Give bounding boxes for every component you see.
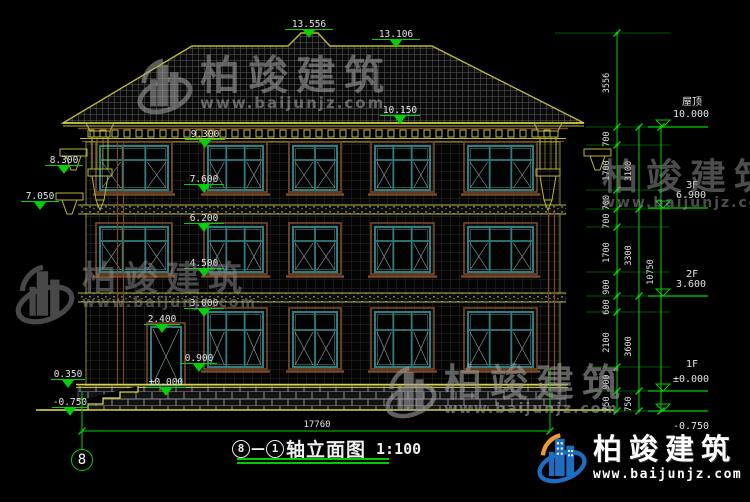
floor-level-marker: 2F3.600: [648, 269, 708, 296]
svg-text:1700: 1700: [602, 242, 612, 262]
svg-text:6.900: 6.900: [676, 190, 706, 201]
window: [461, 142, 540, 195]
floor-level-marker: 1F±0.000: [648, 359, 709, 391]
svg-text:1700: 1700: [602, 160, 612, 180]
svg-text:6.200: 6.200: [190, 213, 219, 224]
window: [93, 223, 175, 277]
svg-text:3556: 3556: [602, 73, 612, 93]
svg-text:900: 900: [602, 279, 612, 294]
svg-text:3600: 3600: [624, 336, 634, 356]
axis-dash: —: [251, 441, 265, 457]
svg-text:±0.000: ±0.000: [673, 374, 709, 385]
title-underline: [237, 458, 389, 460]
axis-start-bubble: 8: [232, 440, 250, 458]
svg-text:2100: 2100: [602, 332, 612, 352]
svg-text:0.350: 0.350: [54, 369, 83, 380]
svg-text:900: 900: [602, 374, 612, 389]
elevation-marker: 8.300: [45, 155, 83, 173]
svg-text:13.106: 13.106: [379, 29, 414, 40]
roof: [63, 33, 584, 123]
svg-text:3.600: 3.600: [676, 279, 706, 290]
dim-chain: 3556700170070070017009006002100900750: [602, 30, 621, 415]
svg-text:7.050: 7.050: [26, 191, 55, 202]
window: [368, 142, 437, 195]
svg-text:17760: 17760: [303, 420, 330, 430]
elevation-marker: 13.106: [372, 29, 420, 47]
window: [286, 308, 344, 372]
window: [461, 223, 540, 277]
svg-text:0.900: 0.900: [185, 353, 214, 364]
svg-text:700: 700: [602, 195, 612, 210]
svg-text:2.400: 2.400: [148, 314, 177, 325]
elevation-marker: -0.750: [52, 397, 88, 415]
svg-text:±0.000: ±0.000: [149, 377, 184, 388]
svg-text:8.300: 8.300: [50, 155, 79, 166]
svg-text:600: 600: [602, 299, 612, 314]
floor-level-marker: 屋顶10.000: [648, 96, 709, 127]
floor-level-marker: -0.750: [648, 404, 709, 432]
window: [368, 308, 437, 372]
window: [286, 223, 344, 277]
svg-text:10.000: 10.000: [673, 109, 709, 120]
footer-logo: 柏竣建筑 www.baijunjz.com: [536, 431, 742, 492]
title-underline: [237, 462, 389, 464]
svg-text:4.500: 4.500: [190, 258, 219, 269]
svg-text:7.600: 7.600: [190, 174, 219, 185]
brand-building-icon: [536, 431, 588, 488]
svg-text:10.150: 10.150: [383, 105, 418, 116]
svg-text:750: 750: [624, 396, 634, 411]
window: [368, 223, 437, 277]
svg-text:700: 700: [602, 213, 612, 228]
elevation-marker: 7.050: [21, 191, 59, 209]
brand-url: www.baijunjz.com: [593, 467, 742, 482]
svg-text:700: 700: [602, 131, 612, 146]
cad-viewport: 13.55613.10610.1509.3008.3007.6007.0506.…: [0, 0, 750, 502]
plinth: [78, 386, 566, 410]
dim-chain: 10750: [646, 124, 665, 415]
window: [201, 142, 270, 195]
brand-building-icon: [536, 431, 588, 492]
svg-text:3100: 3100: [624, 161, 634, 181]
svg-text:1F: 1F: [686, 359, 698, 370]
svg-text:9.300: 9.300: [191, 129, 220, 140]
axis-grid-bubble: 8: [71, 449, 93, 471]
brand-name: 柏竣建筑: [593, 431, 742, 467]
window: [93, 142, 175, 195]
elevation-drawing: 13.55613.10610.1509.3008.3007.6007.0506.…: [0, 0, 750, 502]
elevation-marker: 13.556: [285, 19, 333, 37]
svg-text:3.000: 3.000: [190, 298, 219, 309]
building-layer: [36, 33, 614, 410]
svg-text:13.556: 13.556: [292, 19, 327, 30]
floor-level-marker: 3F6.900: [648, 180, 708, 208]
axis-end-bubble: 1: [266, 440, 284, 458]
window: [461, 308, 540, 372]
title-scale: 1:100: [376, 440, 421, 458]
svg-text:750: 750: [602, 396, 612, 411]
dim-chain: 310033003600750: [624, 124, 643, 415]
window: [286, 142, 344, 195]
svg-text:3300: 3300: [624, 245, 634, 265]
svg-text:屋顶: 屋顶: [682, 96, 702, 108]
